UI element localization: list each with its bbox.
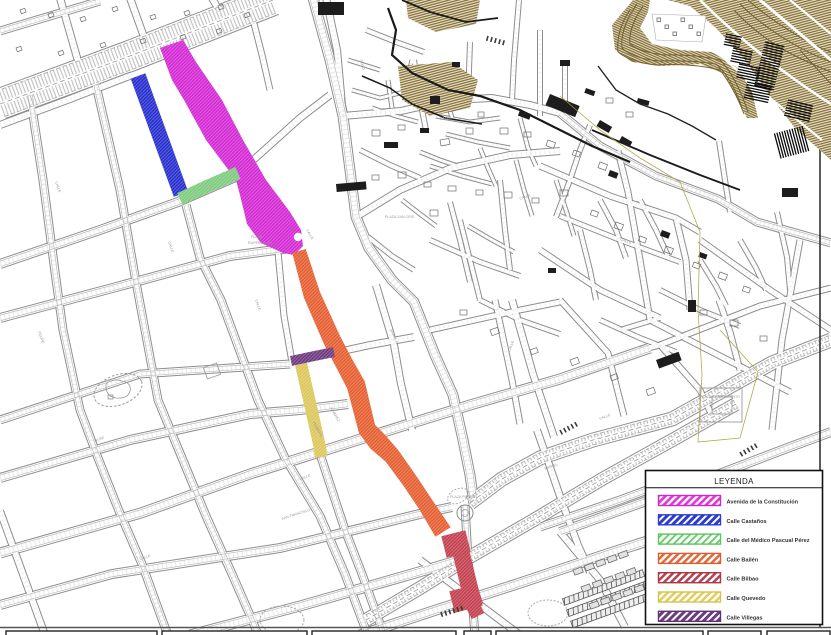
svg-text:LEYENDA: LEYENDA [714,477,754,486]
svg-text:Calle Bailén: Calle Bailén [727,557,759,563]
svg-text:Calle Castaños: Calle Castaños [727,519,767,525]
svg-text:Avenida de la Constitución: Avenida de la Constitución [727,500,799,506]
svg-text:PLAZA: PLAZA [251,235,263,239]
svg-text:Calle Quevedo: Calle Quevedo [727,596,766,602]
svg-text:Calle Villegas: Calle Villegas [727,615,763,621]
svg-text:Calle Bilbao: Calle Bilbao [727,577,760,583]
svg-text:PLAZA AYUNTAMIENTO: PLAZA AYUNTAMIENTO [700,395,740,399]
svg-text:RUPERTO CH: RUPERTO CH [248,241,272,245]
svg-text:PLAZA SAN CRIS: PLAZA SAN CRIS [385,215,415,219]
svg-text:PLAZA PORTAL: PLAZA PORTAL [450,495,476,499]
svg-text:Calle del Médico Pascual Pérez: Calle del Médico Pascual Pérez [727,538,810,544]
